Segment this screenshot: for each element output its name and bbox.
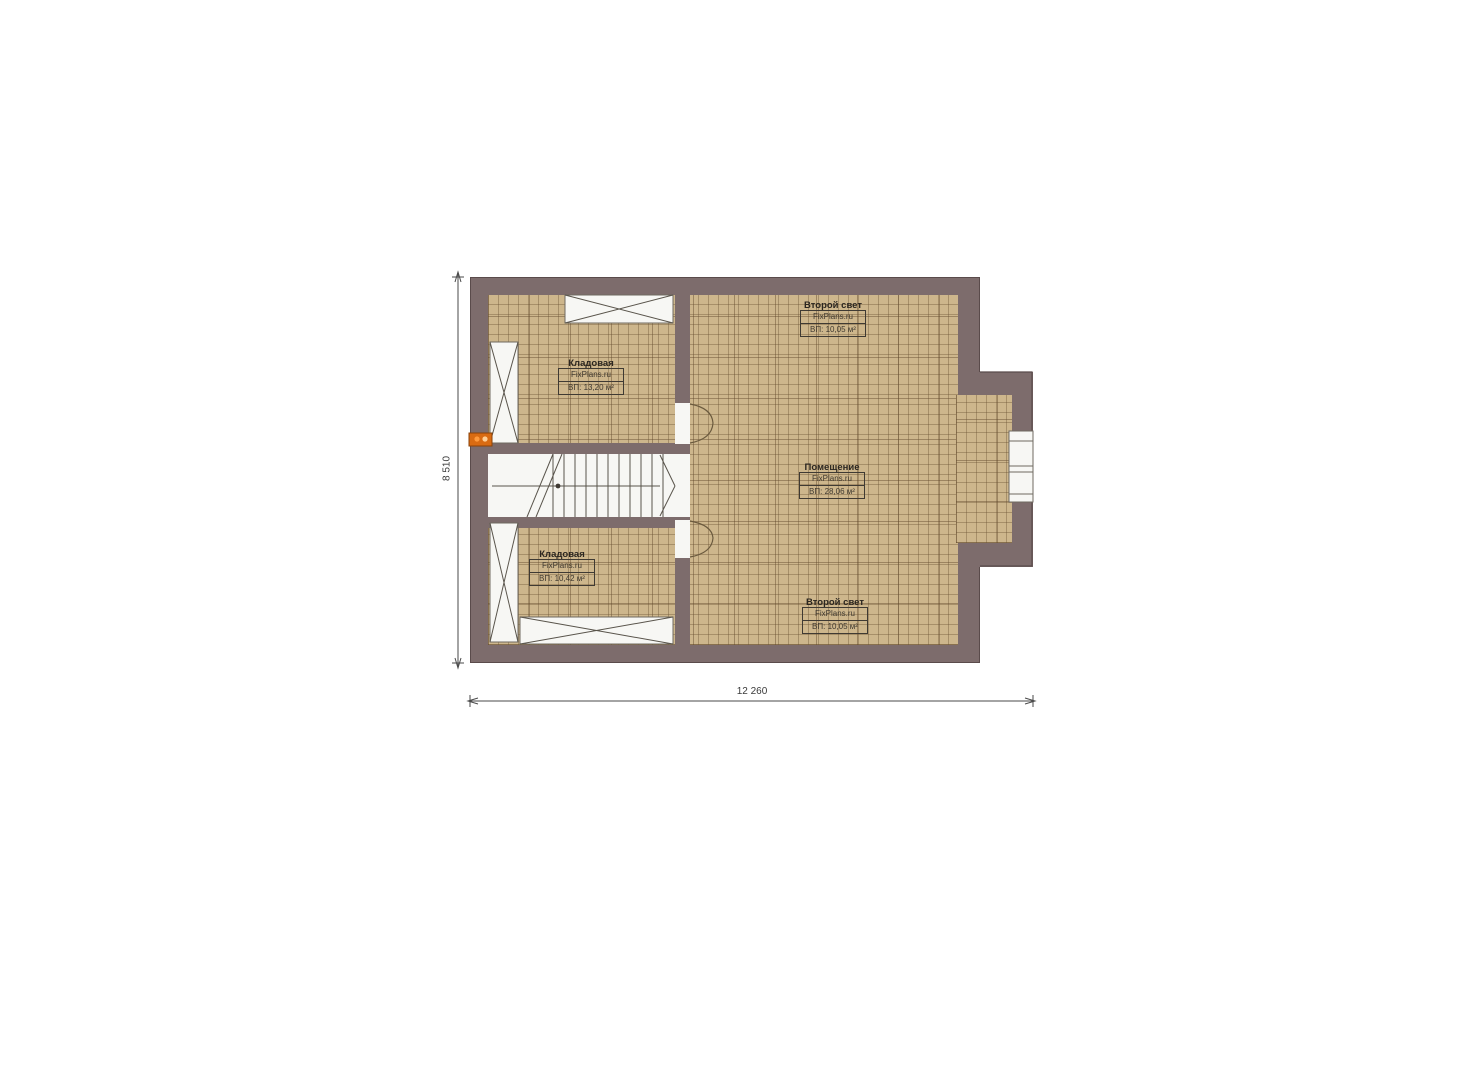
door-swing-upper-icon xyxy=(690,404,713,443)
staircase-icon xyxy=(492,454,675,517)
window-bottom-icon xyxy=(520,617,673,644)
door-swing-lower-icon xyxy=(690,521,713,557)
dimension-label-height: 8 510 xyxy=(442,439,453,499)
electrical-panel-marker xyxy=(469,433,492,446)
floor-plan-canvas: Второй свет FixPlans.ru ВП: 10,05 м² Кла… xyxy=(0,0,1474,1080)
window-right-icon xyxy=(1009,431,1033,502)
window-left-upper-icon xyxy=(490,342,518,443)
dimension-line-vertical xyxy=(452,272,464,668)
dimension-label-width: 12 260 xyxy=(712,686,792,697)
window-left-lower-icon xyxy=(490,523,518,642)
plan-linework xyxy=(0,0,1474,1080)
window-top-icon xyxy=(565,295,673,323)
